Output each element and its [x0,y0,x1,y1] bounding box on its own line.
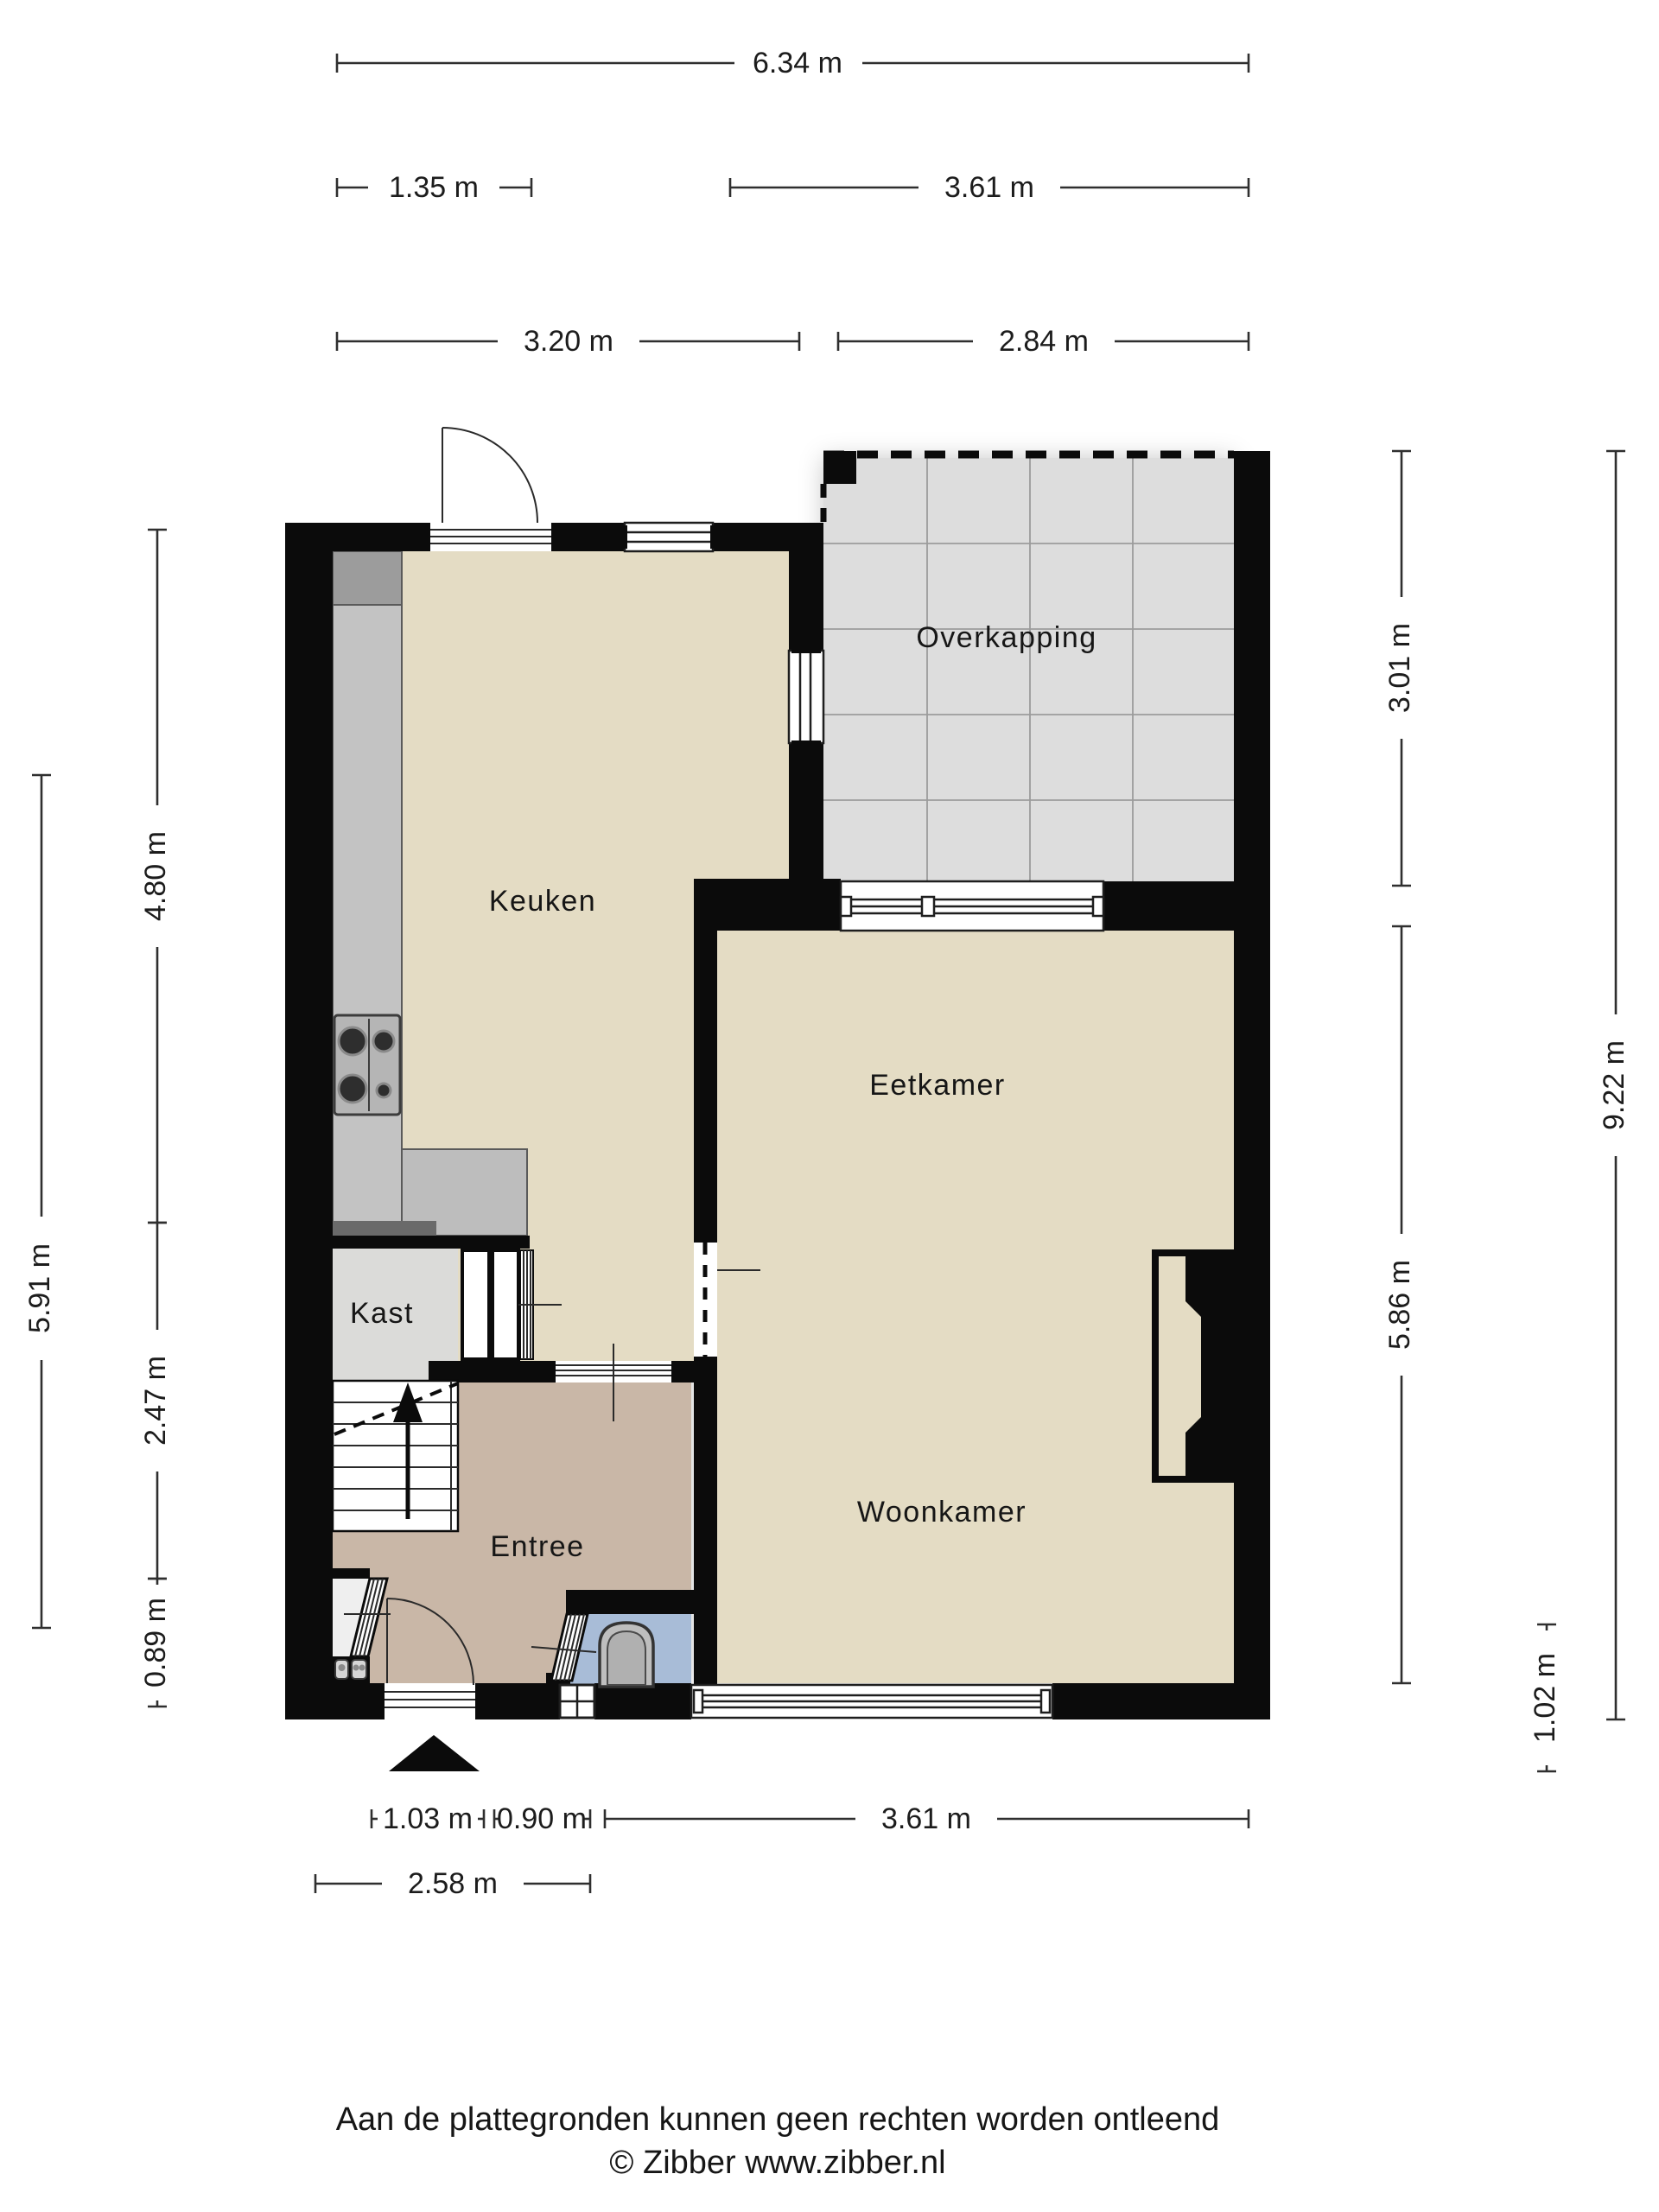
stove-burner [373,1031,394,1052]
svg-text:0.90 m: 0.90 m [497,1802,587,1835]
eetkamer-window [841,881,1103,931]
keuken-side-window [789,647,823,747]
dim-bottom-3-61: 3.61 m [605,1802,1249,1835]
keuken-window [621,523,716,551]
chimney-niche [1155,1253,1234,1479]
floor-areas [333,458,1234,1685]
footer-credit: © Zibber www.zibber.nl [609,2145,945,2181]
svg-text:2.47 m: 2.47 m [139,1356,172,1446]
dim-right-9-22: 9.22 m [1598,451,1630,1719]
stairs [333,1381,458,1531]
svg-text:2.58 m: 2.58 m [408,1867,498,1900]
svg-text:6.34 m: 6.34 m [753,47,842,79]
dim-top-3-20: 3.20 m [337,325,799,358]
svg-text:3.01 m: 3.01 m [1383,623,1416,713]
floorplan-page: Overkapping Keuken Eetkamer Kast Entree … [0,0,1659,2212]
dim-left-2-47: 2.47 m [139,1223,172,1579]
svg-text:1.03 m: 1.03 m [383,1802,473,1835]
woonkamer-window [691,1685,1052,1718]
dim-left-5-91: 5.91 m [23,775,56,1628]
svg-text:4.80 m: 4.80 m [139,831,172,921]
dim-bottom-0-90: 0.90 m [494,1802,590,1835]
dim-left-0-89: 0.89 m [139,1579,172,1707]
svg-text:3.20 m: 3.20 m [524,325,613,358]
dim-top-2-84: 2.84 m [838,325,1249,358]
stove [334,1015,400,1115]
svg-text:5.86 m: 5.86 m [1383,1260,1416,1350]
dim-top-total: 6.34 m [337,47,1249,79]
stove-burner [339,1075,366,1103]
dim-right-5-86: 5.86 m [1383,926,1416,1683]
footer-disclaimer: Aan de plattegronden kunnen geen rechten… [336,2101,1220,2138]
room-label-kast: Kast [350,1297,414,1330]
room-label-woonkamer: Woonkamer [857,1496,1027,1529]
dim-top-1-35: 1.35 m [337,171,531,204]
stove-burner [339,1027,366,1055]
dim-top-3-61: 3.61 m [730,171,1249,204]
svg-text:3.61 m: 3.61 m [944,171,1034,204]
svg-text:9.22 m: 9.22 m [1598,1040,1630,1130]
overkapping-floor [823,458,1234,881]
toilet-window [560,1685,594,1718]
svg-text:0.89 m: 0.89 m [139,1598,172,1688]
room-label-keuken: Keuken [489,885,596,918]
dim-bottom-2-58: 2.58 m [315,1867,590,1900]
room-label-eetkamer: Eetkamer [869,1069,1006,1102]
svg-text:5.91 m: 5.91 m [23,1243,56,1333]
counter-shelf [333,1221,436,1236]
entrance-marker-triangle [389,1735,480,1771]
room-label-overkapping: Overkapping [916,621,1096,654]
floorplan-canvas: Overkapping Keuken Eetkamer Kast Entree … [0,0,1659,2212]
svg-text:1.35 m: 1.35 m [389,171,479,204]
dim-right-3-01: 3.01 m [1383,451,1416,886]
stove-burner [377,1084,391,1097]
keuken-door [430,428,551,551]
svg-text:2.84 m: 2.84 m [999,325,1089,358]
svg-text:3.61 m: 3.61 m [881,1802,971,1835]
room-label-entree: Entree [490,1530,584,1563]
dim-right-1-02: 1.02 m [1529,1624,1561,1771]
svg-text:1.02 m: 1.02 m [1529,1653,1561,1743]
toilet-fixture [600,1623,653,1687]
dim-left-4-80: 4.80 m [139,530,172,1223]
dim-bottom-1-03: 1.03 m [372,1802,484,1835]
